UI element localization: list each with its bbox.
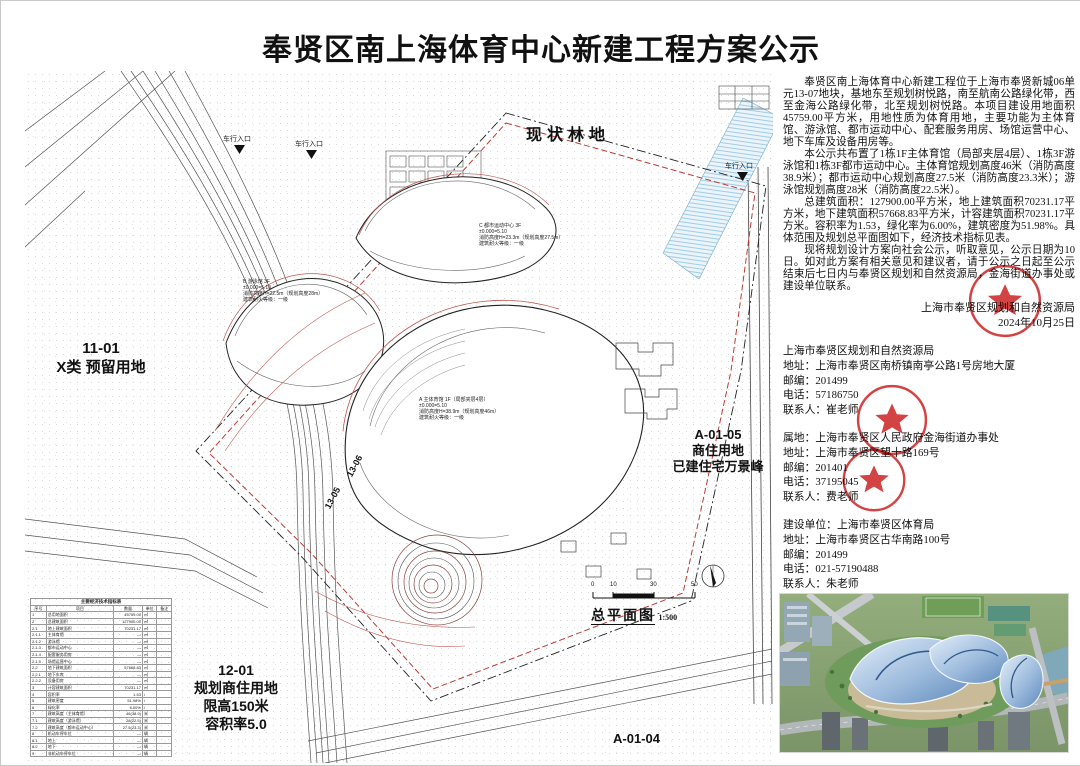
economic-table-cell: 70231.17 <box>114 625 143 632</box>
contact-block-street-office: 属地：上海市奉贤区人民政府金海街道办事处 地址：上海市奉贤区望十路169号 邮编… <box>783 431 1075 505</box>
contact-block-construction-unit: 建设单位：上海市奉贤区体育局 地址：上海市奉贤区古华南路100号 邮编：2014… <box>783 518 1075 592</box>
economic-table-cell: 米 <box>142 717 157 724</box>
aerial-rendering-image <box>779 593 1069 753</box>
economic-table-header-row: 序号项目数量单位备注 <box>31 605 172 612</box>
economic-table-cell <box>157 638 172 645</box>
economic-table-cell <box>157 671 172 678</box>
economic-table-cell: 2.1.5 <box>31 658 47 665</box>
economic-table-cell: — <box>114 651 143 658</box>
economic-table-cell: 70231.17 <box>114 684 143 691</box>
economic-table-cell: ㎡ <box>142 612 157 619</box>
economic-table-cell <box>157 618 172 625</box>
economic-table-cell: ㎡ <box>142 678 157 685</box>
plan-caption: 总平面图 1:500 <box>591 605 677 625</box>
economic-table-cell: 4 <box>31 691 47 698</box>
economic-table-cell: 3 <box>31 684 47 691</box>
economic-table-cell <box>157 631 172 638</box>
economic-table-cell: 辆 <box>142 730 157 737</box>
economic-table-cell: 28(22.5) <box>114 717 143 724</box>
economic-table-row: 2总建筑面积127900.00㎡ <box>31 618 172 625</box>
economic-table-cell: ㎡ <box>142 684 157 691</box>
economic-table-cell: 6 <box>31 704 47 711</box>
scale-bar <box>593 592 695 598</box>
signature-authority: 上海市奉贤区规划和自然资源局 <box>783 301 1075 316</box>
economic-table-cell <box>157 658 172 665</box>
economic-table-cell: 57668.83 <box>114 664 143 671</box>
economic-table-cell: ㎡ <box>142 618 157 625</box>
label-vehicle-entrance: 车行入口 <box>295 139 323 149</box>
economic-table-cell <box>157 612 172 619</box>
economic-table-row: 5建筑密度51.98%/ <box>31 697 172 704</box>
economic-table-cell: — <box>114 638 143 645</box>
economic-table-cell: — <box>114 658 143 665</box>
economic-table-cell: 7 <box>31 711 47 718</box>
economic-table-cell: 辆 <box>142 750 157 757</box>
economic-table-row: 7.1建筑高度（游泳馆）28(22.5)米 <box>31 717 172 724</box>
scale-tick: 30 <box>650 582 657 588</box>
notice-text-column: 奉贤区南上海体育中心新建工程位于上海市奉贤新城06单元13-07地块，基地东至规… <box>783 77 1075 592</box>
label-vehicle-entrance: 车行入口 <box>223 134 251 144</box>
contact-line: 地址：上海市奉贤区古华南路100号 <box>783 533 1075 548</box>
economic-table-row: 8.1地上—辆 <box>31 737 172 744</box>
road-south <box>308 649 772 763</box>
label-zone-11-01: 11-01X类 预留用地 <box>33 339 169 377</box>
economic-table-cell: 游泳馆 <box>46 638 113 645</box>
economic-table-row: 2.1.2游泳馆—㎡ <box>31 638 172 645</box>
contact-line: 联系人：崔老师 <box>783 403 1075 418</box>
economic-table-cell: 5 <box>31 697 47 704</box>
economic-table-cell: 2 <box>31 618 47 625</box>
economic-table-cell: 都市运动中心 <box>46 645 113 652</box>
economic-table-row: 2.1.1主体育馆—㎡ <box>31 631 172 638</box>
label-vehicle-entrance: 车行入口 <box>725 161 753 171</box>
economic-table-cell: 27.5(23.3) <box>114 724 143 731</box>
plan-caption-title: 总平面图 <box>591 609 655 625</box>
notice-paragraph: 现将规划设计方案向社会公示，听取意见，公示日期为10日。如对此方案有相关意见和建… <box>783 245 1075 293</box>
contact-line: 电话：57186750 <box>783 388 1075 403</box>
economic-table-cell: 场馆运营中心 <box>46 658 113 665</box>
economic-table-cell <box>157 678 172 685</box>
economic-table-cell: 主体育馆 <box>46 631 113 638</box>
contact-line: 建设单位：上海市奉贤区体育局 <box>783 518 1075 533</box>
scale-tick: 50 <box>691 582 698 588</box>
economic-table-cell: ㎡ <box>142 638 157 645</box>
economic-table-row: 1总用地面积45759.00㎡ <box>31 612 172 619</box>
scale-tick: 10 <box>610 582 617 588</box>
economic-table-cell: 地下建筑面积 <box>46 664 113 671</box>
annotation-building-b: B 游泳馆 3F±0.000=5.10 消防高度H=22.5m（规划高度28m）… <box>243 279 323 303</box>
economic-table-cell: 非机动车停车位 <box>46 750 113 757</box>
economic-table-cell: — <box>114 645 143 652</box>
economic-table-header-cell: 序号 <box>31 605 47 612</box>
contact-line: 地址：上海市奉贤区望十路169号 <box>783 446 1075 461</box>
economic-table-row: 8机动车停车位—辆 <box>31 730 172 737</box>
economic-table-cell <box>157 737 172 744</box>
signature-date: 2024年10月25日 <box>783 316 1075 331</box>
economic-table-row: 3计容建筑面积70231.17㎡ <box>31 684 172 691</box>
label-existing-forest: 现状林地 <box>526 121 610 145</box>
economic-indicators-table: 主要经济技术指标表 序号项目数量单位备注 1总用地面积45759.00㎡2总建筑… <box>30 598 172 757</box>
economic-table-cell: 9 <box>31 750 47 757</box>
contact-line: 电话：021-57190488 <box>783 562 1075 577</box>
contact-line: 电话：37195045 <box>783 475 1075 490</box>
page-title: 奉贤区南上海体育中心新建工程方案公示 <box>1 25 1080 69</box>
economic-table-cell: 2.1.4 <box>31 651 47 658</box>
economic-table-cell <box>157 704 172 711</box>
economic-table-cell: 地下车库 <box>46 671 113 678</box>
economic-table-cell: 8.1 <box>31 737 47 744</box>
economic-table-cell: 建筑高度（主体育馆） <box>46 711 113 718</box>
economic-table-cell: 8.2 <box>31 744 47 751</box>
economic-table-cell: 地上 <box>46 737 113 744</box>
economic-table-cell: — <box>114 730 143 737</box>
economic-table-cell: 2.1.1 <box>31 631 47 638</box>
annotation-building-c: C 都市运动中心 3F±0.000=5.10 消防高度H=23.3m（规划高度2… <box>479 223 563 247</box>
economic-table-cell: 计容建筑面积 <box>46 684 113 691</box>
economic-table-header-cell: 单位 <box>142 605 157 612</box>
notice-paragraph: 奉贤区南上海体育中心新建工程位于上海市奉贤新城06单元13-07地块，基地东至规… <box>783 77 1075 149</box>
economic-table-cell: 配套服务用房 <box>46 651 113 658</box>
economic-table-title: 主要经济技术指标表 <box>31 599 172 606</box>
contact-line: 邮编：201499 <box>783 548 1075 563</box>
economic-table-header-cell: 数量 <box>114 605 143 612</box>
notice-paragraph: 本公示共布置了1栋1F主体育馆（局部夹层4层）、1栋3F游泳馆和1栋3F都市运动… <box>783 149 1075 197</box>
economic-table-cell: 建筑高度（游泳馆） <box>46 717 113 724</box>
economic-table-cell <box>157 711 172 718</box>
economic-table-cell: 2.1 <box>31 625 47 632</box>
public-notice-page: 奉贤区南上海体育中心新建工程方案公示 <box>0 0 1080 766</box>
economic-table-cell: ㎡ <box>142 671 157 678</box>
economic-table-cell: 地下 <box>46 744 113 751</box>
economic-table-cell: 2.2 <box>31 664 47 671</box>
economic-table-row: 7建筑高度（主体育馆）46(38.9)米 <box>31 711 172 718</box>
economic-table-cell: 2.1.3 <box>31 645 47 652</box>
economic-table-cell: ㎡ <box>142 651 157 658</box>
contact-line: 邮编：201499 <box>783 374 1075 389</box>
economic-table-cell: 绿化率 <box>46 704 113 711</box>
economic-table-cell: 1.53 <box>114 691 143 698</box>
annotation-building-a: A 主体育馆 1F（局部夹层4层）±0.000=5.10 消防高度H=38.9m… <box>419 397 499 421</box>
notice-paragraph: 总建筑面积：127900.00平方米，地上建筑面积70231.17平方米，地下建… <box>783 197 1075 245</box>
economic-table-cell: 6.00% <box>114 704 143 711</box>
economic-table-cell: 8 <box>31 730 47 737</box>
building-a-main-stadium <box>343 300 644 554</box>
economic-table-row: 2.1.3都市运动中心—㎡ <box>31 645 172 652</box>
economic-table-cell: / <box>142 704 157 711</box>
economic-table-cell <box>157 651 172 658</box>
economic-table-cell: — <box>114 744 143 751</box>
economic-table-cell: 7.2 <box>31 724 47 731</box>
economic-table-cell: / <box>142 697 157 704</box>
label-zone-a-01-04: A-01-04 <box>613 731 660 746</box>
economic-table-body: 1总用地面积45759.00㎡2总建筑面积127900.00㎡2.1地上建筑面积… <box>31 612 172 757</box>
economic-table-row: 8.2地下—辆 <box>31 744 172 751</box>
economic-table-cell: 7.1 <box>31 717 47 724</box>
economic-table-cell: 米 <box>142 724 157 731</box>
contact-block-planning-bureau: 上海市奉贤区规划和自然资源局 地址：上海市奉贤区南桥镇南亭公路1号房地大厦 邮编… <box>783 344 1075 418</box>
economic-table-cell: 127900.00 <box>114 618 143 625</box>
label-zone-12-01: 12-01规划商住用地 限高150米容积率5.0 <box>167 661 305 733</box>
label-zone-a-01-05: A-01-05商住用地 已建住宅万景峰 <box>655 427 781 475</box>
road-southwest <box>25 519 268 608</box>
economic-table-cell: 地上建筑面积 <box>46 625 113 632</box>
economic-table-cell: 46(38.9) <box>114 711 143 718</box>
economic-table-cell <box>157 625 172 632</box>
contact-line: 属地：上海市奉贤区人民政府金海街道办事处 <box>783 431 1075 446</box>
economic-table-row: 2.1.5场馆运营中心—㎡ <box>31 658 172 665</box>
economic-table-row: 6绿化率6.00%/ <box>31 704 172 711</box>
river-water-area <box>663 98 773 279</box>
economic-table-cell: — <box>114 678 143 685</box>
economic-table-cell <box>157 691 172 698</box>
economic-table-cell <box>157 664 172 671</box>
economic-table-header-cell: 备注 <box>157 605 172 612</box>
site-plan-drawing: 现状林地 车行入口 车行入口 车行入口 C 都市运动中心 3F±0.000=5.… <box>25 71 773 763</box>
plan-caption-scale: 1:500 <box>659 613 678 622</box>
economic-table-cell: ㎡ <box>142 645 157 652</box>
economic-table-cell: ㎡ <box>142 658 157 665</box>
economic-table-cell: 辆 <box>142 744 157 751</box>
economic-table-row: 2.2地下建筑面积57668.83㎡ <box>31 664 172 671</box>
economic-table-cell: 设备用房 <box>46 678 113 685</box>
economic-table-cell: — <box>114 737 143 744</box>
contact-line: 邮编：201401 <box>783 461 1075 476</box>
economic-table-cell <box>157 730 172 737</box>
economic-table-cell: 1 <box>31 612 47 619</box>
economic-table-cell: 2.2.2 <box>31 678 47 685</box>
economic-table-cell: 建筑密度 <box>46 697 113 704</box>
contact-line: 联系人：费老师 <box>783 490 1075 505</box>
economic-table-cell <box>157 750 172 757</box>
economic-table-cell: 总用地面积 <box>46 612 113 619</box>
economic-table-row: 7.2建筑高度（都市运动中心）27.5(23.3)米 <box>31 724 172 731</box>
economic-table-row: 2.2.1地下车库—㎡ <box>31 671 172 678</box>
economic-table-cell: 米 <box>142 711 157 718</box>
economic-table-row: 2.1地上建筑面积70231.17㎡ <box>31 625 172 632</box>
economic-table-cell <box>157 717 172 724</box>
contact-line: 地址：上海市奉贤区南桥镇南亭公路1号房地大厦 <box>783 359 1075 374</box>
scale-tick: 0 <box>591 582 594 588</box>
economic-table-cell: 总建筑面积 <box>46 618 113 625</box>
north-arrow-icon <box>702 565 724 587</box>
economic-table-cell: — <box>114 750 143 757</box>
economic-table-cell: — <box>114 631 143 638</box>
economic-table-row: 9非机动车停车位—辆 <box>31 750 172 757</box>
economic-table-cell <box>157 744 172 751</box>
contact-line: 上海市奉贤区规划和自然资源局 <box>783 344 1075 359</box>
economic-table-cell <box>157 697 172 704</box>
economic-table-cell: 2.2.1 <box>31 671 47 678</box>
economic-table-cell: ㎡ <box>142 631 157 638</box>
economic-table-cell: 45759.00 <box>114 612 143 619</box>
economic-table-cell: 51.98% <box>114 697 143 704</box>
entrance-triangle-icon <box>234 145 748 181</box>
economic-table-cell: 建筑高度（都市运动中心） <box>46 724 113 731</box>
economic-table-cell: 2.1.2 <box>31 638 47 645</box>
economic-table-cell: 容积率 <box>46 691 113 698</box>
economic-table-cell: 辆 <box>142 737 157 744</box>
contact-line: 联系人：朱老师 <box>783 577 1075 592</box>
economic-table-cell <box>157 684 172 691</box>
economic-table-cell: ㎡ <box>142 664 157 671</box>
economic-table-row: 2.2.2设备用房—㎡ <box>31 678 172 685</box>
economic-table-cell: / <box>142 691 157 698</box>
economic-table-header-cell: 项目 <box>46 605 113 612</box>
economic-table-cell <box>157 724 172 731</box>
economic-table-cell: ㎡ <box>142 625 157 632</box>
economic-table-row: 2.1.4配套服务用房—㎡ <box>31 651 172 658</box>
economic-table-cell: 机动车停车位 <box>46 730 113 737</box>
economic-table-cell <box>157 645 172 652</box>
economic-table-row: 4容积率1.53/ <box>31 691 172 698</box>
economic-table-cell: — <box>114 671 143 678</box>
